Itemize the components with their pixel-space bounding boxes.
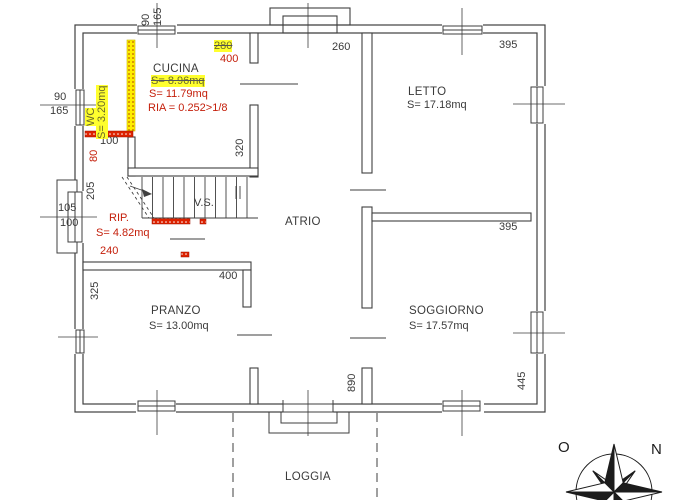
dim-new-opening-width: 80 [88,150,100,162]
dim-top-window-height: 165 [152,8,164,26]
dim-entry-width: 105 [58,202,76,214]
cucina-area-new: S= 11.79mq [149,88,208,100]
dim-wc-window-height: 165 [50,105,68,117]
pranzo-area: S= 13.00mq [149,320,209,332]
stair-direction-arrow [142,189,152,197]
soggiorno-area: S= 17.57mq [409,320,469,332]
compass-west-label: O [558,440,570,457]
dim-entry-height: 100 [60,217,78,229]
compass-north-label: N [651,442,662,459]
chimney [270,8,350,33]
dim-wc-window-width: 90 [54,91,66,103]
loggia-boundary [233,413,377,500]
demolition-wall-yellow [127,40,135,131]
dim-pranzo-width: 400 [219,270,237,282]
dim-atrio-top: 260 [332,41,350,53]
dim-cucina-width-new: 400 [220,53,238,65]
letto-label: LETTO [408,86,446,99]
cucina-ria-ratio: RIA = 0.252>1/8 [148,102,228,114]
loggia-label: LOGGIA [285,471,331,484]
cucina-area-old: S= 8.96mq [151,75,205,87]
staircase [122,177,258,218]
dim-soggiorno-width: 395 [499,221,517,233]
vano-scala-label: V.S. [194,197,214,209]
dim-rip-height: 205 [85,182,97,200]
floor-plan-page: CUCINA S= 8.96mq S= 11.79mq RIA = 0.252>… [0,0,700,500]
rip-label: RIP. [109,212,129,224]
door-opening-marks [170,84,386,338]
dim-letto-width: 395 [499,39,517,51]
dim-rip-width: 240 [100,245,118,257]
wc-area: S= 3.20mq [96,85,108,139]
rip-area: S= 4.82mq [96,227,150,239]
dim-pranzo-height: 325 [89,282,101,300]
dim-top-window-width: 90 [140,14,152,26]
cucina-label: CUCINA [153,63,199,76]
dim-cucina-door: 320 [234,139,246,157]
dim-atrio-depth: 890 [346,374,358,392]
dim-cucina-width-old: 280 [214,40,232,52]
dim-soggiorno-height: 445 [516,372,528,390]
letto-area: S= 17.18mq [407,99,467,111]
atrio-label: ATRIO [285,216,321,229]
soggiorno-label: SOGGIORNO [409,305,484,318]
compass-rose [566,444,662,500]
pranzo-label: PRANZO [151,305,201,318]
